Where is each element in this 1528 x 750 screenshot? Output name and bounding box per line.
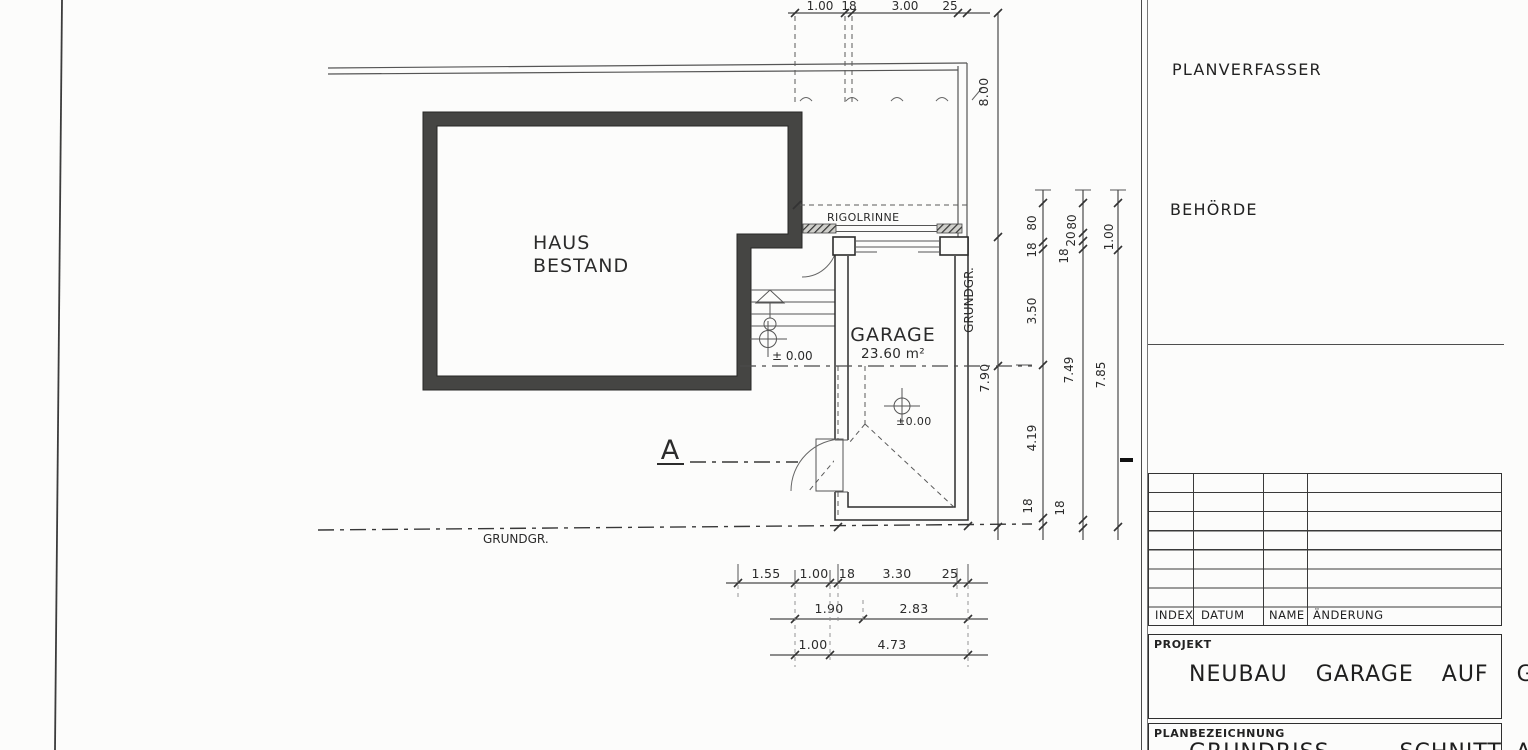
dim-vertical-right: 8.00 7.90 GRUNDGR. <box>962 9 1032 540</box>
dim-label: 2.83 <box>899 601 928 616</box>
dim-label: 4.73 <box>877 637 906 652</box>
dim-bottom: 1.55 1.00 18 3.30 25 1.90 2.83 1.00 4.73 <box>726 564 988 667</box>
elevation-value: ±0.00 <box>896 415 932 428</box>
titleblock-left-border <box>1141 0 1142 750</box>
dim-label: 7.49 <box>1062 357 1076 384</box>
dim-label: 18 <box>1057 248 1071 263</box>
elevation-mark-house: ± 0.00 <box>750 321 813 363</box>
projekt-box: PROJEKT NEUBAU GARAGE AUF GP <box>1148 634 1502 719</box>
projekt-label: PROJEKT <box>1154 638 1212 651</box>
dim-chains: 80 18 3.50 4.19 18 80 20 18 7.49 18 1.00… <box>1021 190 1133 540</box>
side-door-opening <box>834 440 849 492</box>
column-line <box>1263 474 1264 625</box>
dim-label: 20 <box>1064 231 1078 246</box>
revision-table: INDEX DATUM NAME ÄNDERUNG <box>1148 473 1502 626</box>
section-letter: A <box>661 435 680 466</box>
property-line-ticks <box>834 522 972 531</box>
dim-top: 1.00 18 3.00 25 <box>788 0 990 106</box>
property-line <box>318 524 1032 530</box>
stairs: ± 0.00 <box>750 242 837 363</box>
dim-label: 4.19 <box>1025 425 1039 452</box>
garage-door-post-left <box>833 237 855 255</box>
garage-label: GARAGE <box>850 324 936 346</box>
garage: GARAGE 23.60 m² ±0.00 <box>791 237 968 520</box>
behoerde-label: BEHÖRDE <box>1170 200 1258 219</box>
dim-label: 80 <box>1025 215 1039 230</box>
titleblock-divider <box>1148 344 1504 345</box>
dim-label: 3.50 <box>1025 298 1039 325</box>
elevation-mark-garage: ±0.00 <box>884 388 932 428</box>
dim-label: 7.90 <box>977 363 992 392</box>
dim-label: 8.00 <box>976 77 991 106</box>
haus-bestand: HAUS BESTAND <box>423 112 802 390</box>
terrain-break-marks <box>800 98 948 102</box>
rigolrinne-label: RIGOLRINNE <box>827 211 900 224</box>
dim-label: 7.85 <box>1094 362 1108 389</box>
elevation-value: ± 0.00 <box>772 349 813 363</box>
dim-label: 1.55 <box>751 566 780 581</box>
revision-header-name: NAME <box>1269 608 1305 622</box>
dim-label: 1.00 <box>807 0 834 13</box>
stair-arrow-origin <box>764 318 776 330</box>
garage-area-label: 23.60 m² <box>861 346 925 362</box>
existing-house-walls <box>423 112 802 390</box>
scan-artifact-mark <box>1120 458 1133 462</box>
dim-label: 1.00 <box>798 637 827 652</box>
planverfasser-label: PLANVERFASSER <box>1172 60 1322 79</box>
planbezeichnung-title: GRUNDRISS SCHNITT A-A <box>1189 740 1528 750</box>
house-label-line1: HAUS <box>533 232 590 254</box>
slope-dashed-lines <box>808 366 956 509</box>
page-edge-line <box>55 0 62 750</box>
column-line <box>1193 474 1194 625</box>
planbezeichnung-box: PLANBEZEICHNUNG GRUNDRISS SCHNITT A-A <box>1148 723 1502 750</box>
grundgrenze-side-label: GRUNDGR. <box>962 267 976 333</box>
revision-header-datum: DATUM <box>1201 608 1245 622</box>
house-door-swing-arc <box>802 242 837 277</box>
revision-header-index: INDEX <box>1155 608 1194 622</box>
dim-label: 1.00 <box>799 566 828 581</box>
dim-label: 18 <box>839 566 856 581</box>
dim-label: 25 <box>942 566 959 581</box>
scanned-plan-page: 1.00 18 3.00 25 8.00 7.90 GRUNDGR. HAUS … <box>0 0 1528 750</box>
titleblock: PLANVERFASSER BEHÖRDE INDEX DATUM NAME Ä… <box>1140 0 1528 750</box>
channel-block-right <box>937 224 962 233</box>
dim-label: 25 <box>942 0 957 13</box>
dim-label: 80 <box>1065 214 1079 229</box>
garage-door-post-right <box>940 237 968 255</box>
planbezeichnung-label: PLANBEZEICHNUNG <box>1154 727 1285 740</box>
garage-outer-wall <box>835 237 968 520</box>
garage-inner-wall <box>848 256 955 507</box>
channel-block-left <box>803 224 836 233</box>
dim-label: 1.00 <box>1102 224 1116 251</box>
dim-label: 18 <box>841 0 856 13</box>
revision-header-aenderung: ÄNDERUNG <box>1313 608 1384 622</box>
grundgrenze-label: GRUNDGR. <box>483 532 549 546</box>
dim-label: 3.30 <box>882 566 911 581</box>
section-line-a: A <box>657 435 798 466</box>
dim-label: 18 <box>1021 498 1035 513</box>
projekt-title: NEUBAU GARAGE AUF GP <box>1189 662 1528 687</box>
house-label-line2: BESTAND <box>533 255 629 277</box>
dim-label: 1.90 <box>814 601 843 616</box>
garage-door-track <box>855 241 940 247</box>
rigolrinne: RIGOLRINNE <box>793 201 968 233</box>
dim-label: 18 <box>1025 242 1039 257</box>
boundary-line-outer <box>328 63 967 68</box>
grundgrenze-bottom: GRUNDGR. <box>318 522 1032 546</box>
dim-label: 3.00 <box>892 0 919 13</box>
extension-lines <box>795 16 852 106</box>
dim-label: 18 <box>1053 500 1067 515</box>
boundary-line-inner <box>328 70 958 74</box>
column-line <box>1307 474 1308 625</box>
stair-arrow-head <box>756 290 784 303</box>
